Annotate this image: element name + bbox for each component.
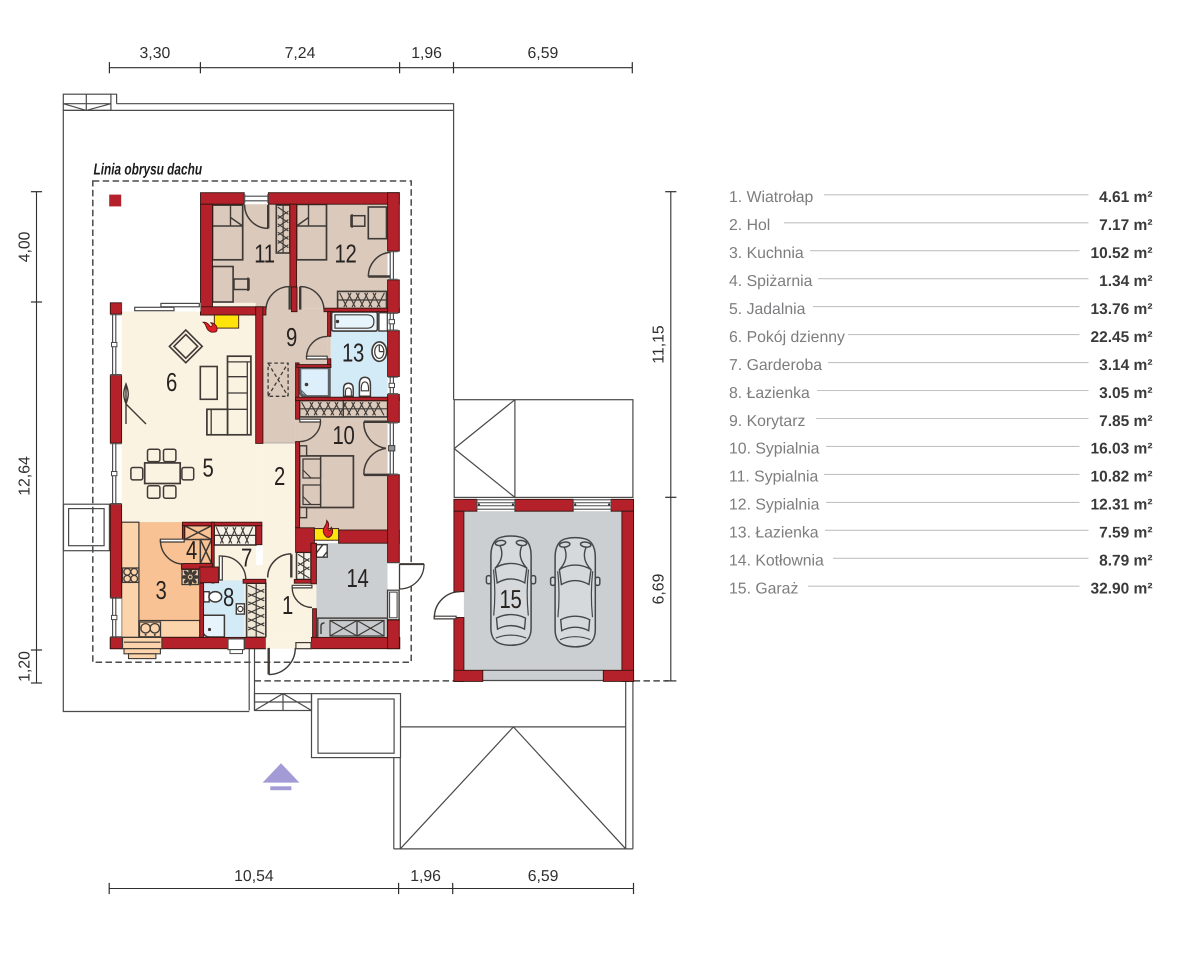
svg-text:1: 1: [282, 590, 293, 620]
svg-text:5. Jadalnia: 5. Jadalnia: [729, 301, 806, 318]
svg-text:5: 5: [202, 453, 213, 483]
svg-text:12.31 m²: 12.31 m²: [1090, 497, 1152, 514]
svg-text:6. Pokój dzienny: 6. Pokój dzienny: [729, 329, 845, 346]
svg-text:4: 4: [186, 535, 197, 565]
svg-text:8.79 m²: 8.79 m²: [1099, 553, 1152, 570]
svg-text:13. Łazienka: 13. Łazienka: [729, 525, 819, 542]
svg-text:10.52 m²: 10.52 m²: [1090, 245, 1152, 262]
svg-text:4. Spiżarnia: 4. Spiżarnia: [729, 273, 813, 290]
svg-text:13: 13: [342, 338, 364, 368]
svg-text:14: 14: [346, 563, 368, 593]
svg-text:7.59 m²: 7.59 m²: [1099, 525, 1152, 542]
svg-text:1.34 m²: 1.34 m²: [1099, 273, 1152, 290]
svg-text:1. Wiatrołap: 1. Wiatrołap: [729, 189, 813, 206]
svg-text:7.17 m²: 7.17 m²: [1099, 217, 1152, 234]
svg-text:9. Korytarz: 9. Korytarz: [729, 413, 805, 430]
svg-text:Linia obrysu dachu: Linia obrysu dachu: [94, 162, 203, 179]
svg-text:22.45 m²: 22.45 m²: [1090, 329, 1152, 346]
svg-text:9: 9: [286, 322, 297, 352]
svg-text:8. Łazienka: 8. Łazienka: [729, 385, 810, 402]
svg-text:2. Hol: 2. Hol: [729, 217, 770, 234]
svg-text:3: 3: [155, 575, 166, 605]
svg-text:7. Garderoba: 7. Garderoba: [729, 357, 822, 374]
svg-text:12,64: 12,64: [17, 456, 34, 496]
svg-text:7.85 m²: 7.85 m²: [1099, 413, 1152, 430]
svg-text:10,54: 10,54: [234, 868, 274, 885]
svg-text:14. Kotłownia: 14. Kotłownia: [729, 553, 824, 570]
svg-text:13.76 m²: 13.76 m²: [1090, 301, 1152, 318]
svg-text:3.05 m²: 3.05 m²: [1099, 385, 1152, 402]
svg-text:6,59: 6,59: [528, 45, 559, 62]
svg-text:4,00: 4,00: [17, 231, 34, 262]
svg-text:7: 7: [241, 543, 252, 573]
svg-text:1,96: 1,96: [411, 45, 442, 62]
svg-text:7,24: 7,24: [285, 45, 316, 62]
svg-text:32.90 m²: 32.90 m²: [1090, 581, 1152, 598]
svg-text:11: 11: [254, 239, 275, 269]
svg-text:2: 2: [274, 461, 285, 491]
svg-text:1,96: 1,96: [410, 868, 441, 885]
svg-text:11,15: 11,15: [651, 325, 668, 364]
svg-text:3. Kuchnia: 3. Kuchnia: [729, 245, 804, 262]
svg-text:12: 12: [334, 239, 356, 269]
svg-text:6,69: 6,69: [651, 573, 668, 604]
svg-text:10: 10: [332, 420, 354, 450]
svg-text:3.14 m²: 3.14 m²: [1099, 357, 1152, 374]
svg-text:15. Garaż: 15. Garaż: [729, 581, 798, 598]
svg-text:16.03 m²: 16.03 m²: [1090, 441, 1152, 458]
svg-text:4.61 m²: 4.61 m²: [1099, 189, 1152, 206]
svg-text:10.82 m²: 10.82 m²: [1090, 469, 1152, 486]
svg-text:6: 6: [166, 367, 177, 397]
svg-text:15: 15: [499, 584, 521, 614]
svg-text:11. Sypialnia: 11. Sypialnia: [729, 469, 818, 486]
svg-text:12. Sypialnia: 12. Sypialnia: [729, 497, 820, 514]
svg-text:3,30: 3,30: [140, 45, 171, 62]
svg-text:1,20: 1,20: [17, 651, 34, 682]
svg-text:10. Sypialnia: 10. Sypialnia: [729, 441, 820, 458]
svg-text:8: 8: [223, 582, 234, 612]
svg-text:6,59: 6,59: [528, 868, 559, 885]
